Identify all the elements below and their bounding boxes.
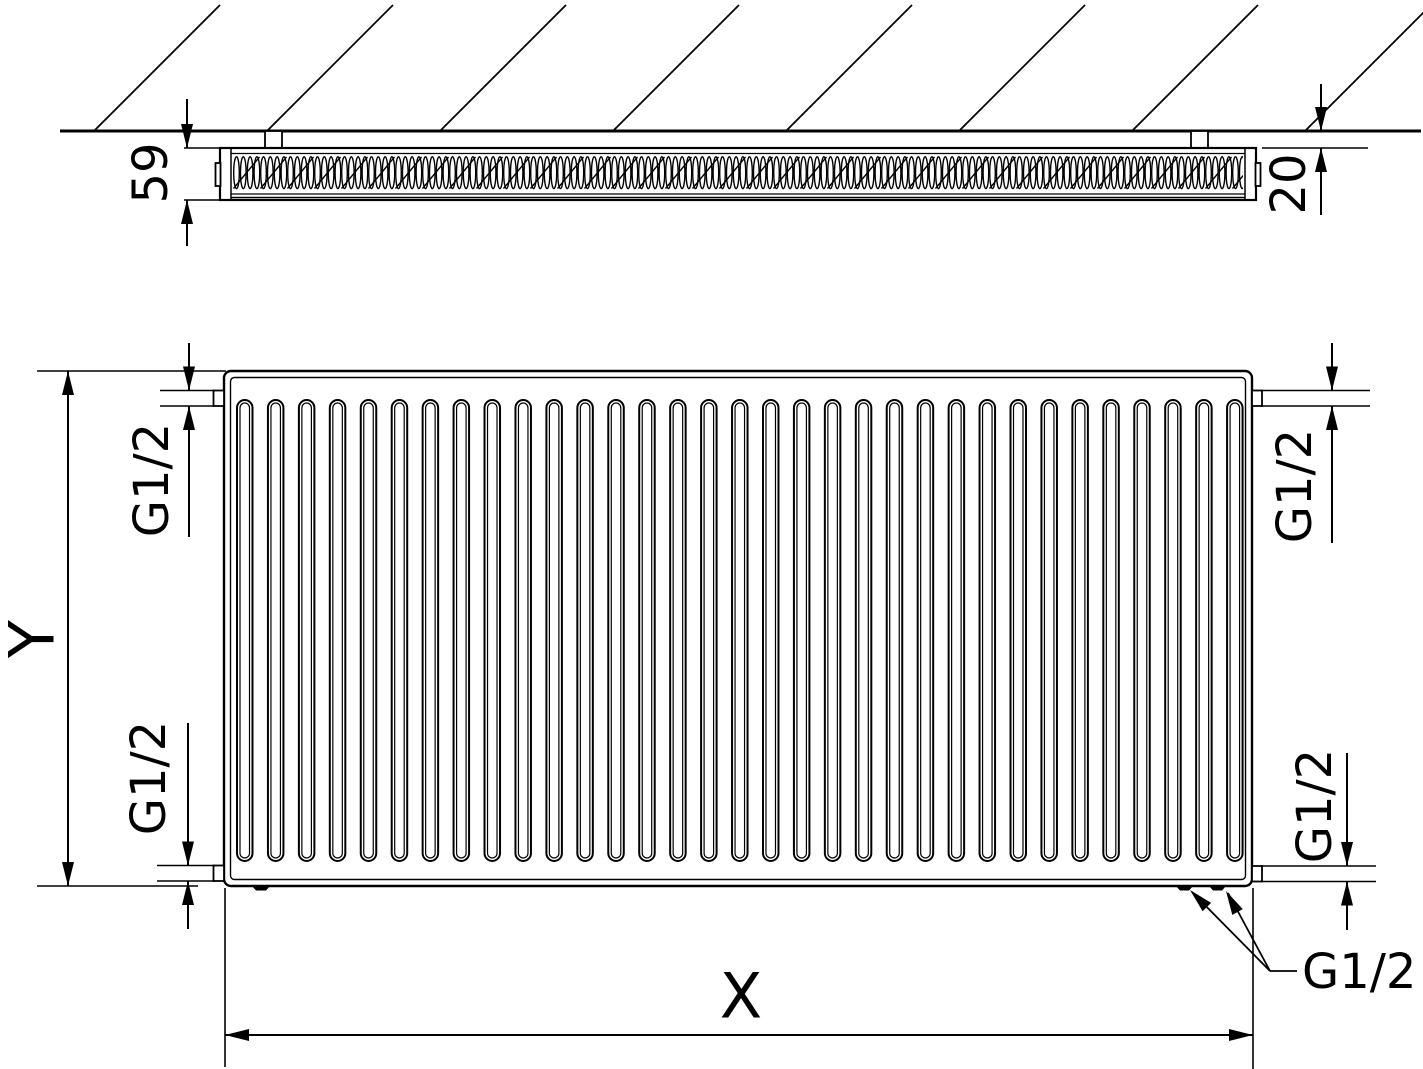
connection-boss-bottom-left [214, 866, 225, 882]
dim-wall-distance-label: 20 [1261, 153, 1317, 214]
connection-boss-top-left [214, 391, 225, 407]
radiator-technical-drawing: 59 20 Y X G1/2 G1/2 G1/2 G1/2 G1/2 [0, 0, 1423, 1069]
dim-height-label: Y [0, 620, 69, 659]
drawing-canvas: 59 20 Y X G1/2 G1/2 G1/2 G1/2 G1/2 [0, 0, 1423, 1069]
front-panel-outline [224, 371, 1252, 886]
dim-depth-label: 59 [123, 142, 179, 203]
bottom-valve-tab-2 [1209, 886, 1226, 891]
radiator-front-view [214, 371, 1263, 891]
convector-fins [233, 156, 1243, 191]
conn-bottom-valve-label: G1/2 [1302, 944, 1416, 1000]
side-boss-left [216, 163, 221, 186]
conn-bottom-right-label: G1/2 [1287, 749, 1343, 863]
bottom-valve-tab-1 [1176, 886, 1193, 891]
side-boss-right [1256, 163, 1261, 186]
wall-hatching [95, 5, 1423, 130]
radiator-top-view [216, 131, 1261, 200]
connection-boss-top-right [1252, 391, 1262, 407]
connection-boss-bottom-right [1252, 866, 1262, 882]
conn-top-left-label: G1/2 [124, 423, 180, 537]
bottom-tab-left [252, 886, 270, 891]
conn-bottom-left-label: G1/2 [121, 721, 177, 835]
dim-width-label: X [720, 960, 762, 1033]
conn-top-right-label: G1/2 [1267, 429, 1323, 543]
